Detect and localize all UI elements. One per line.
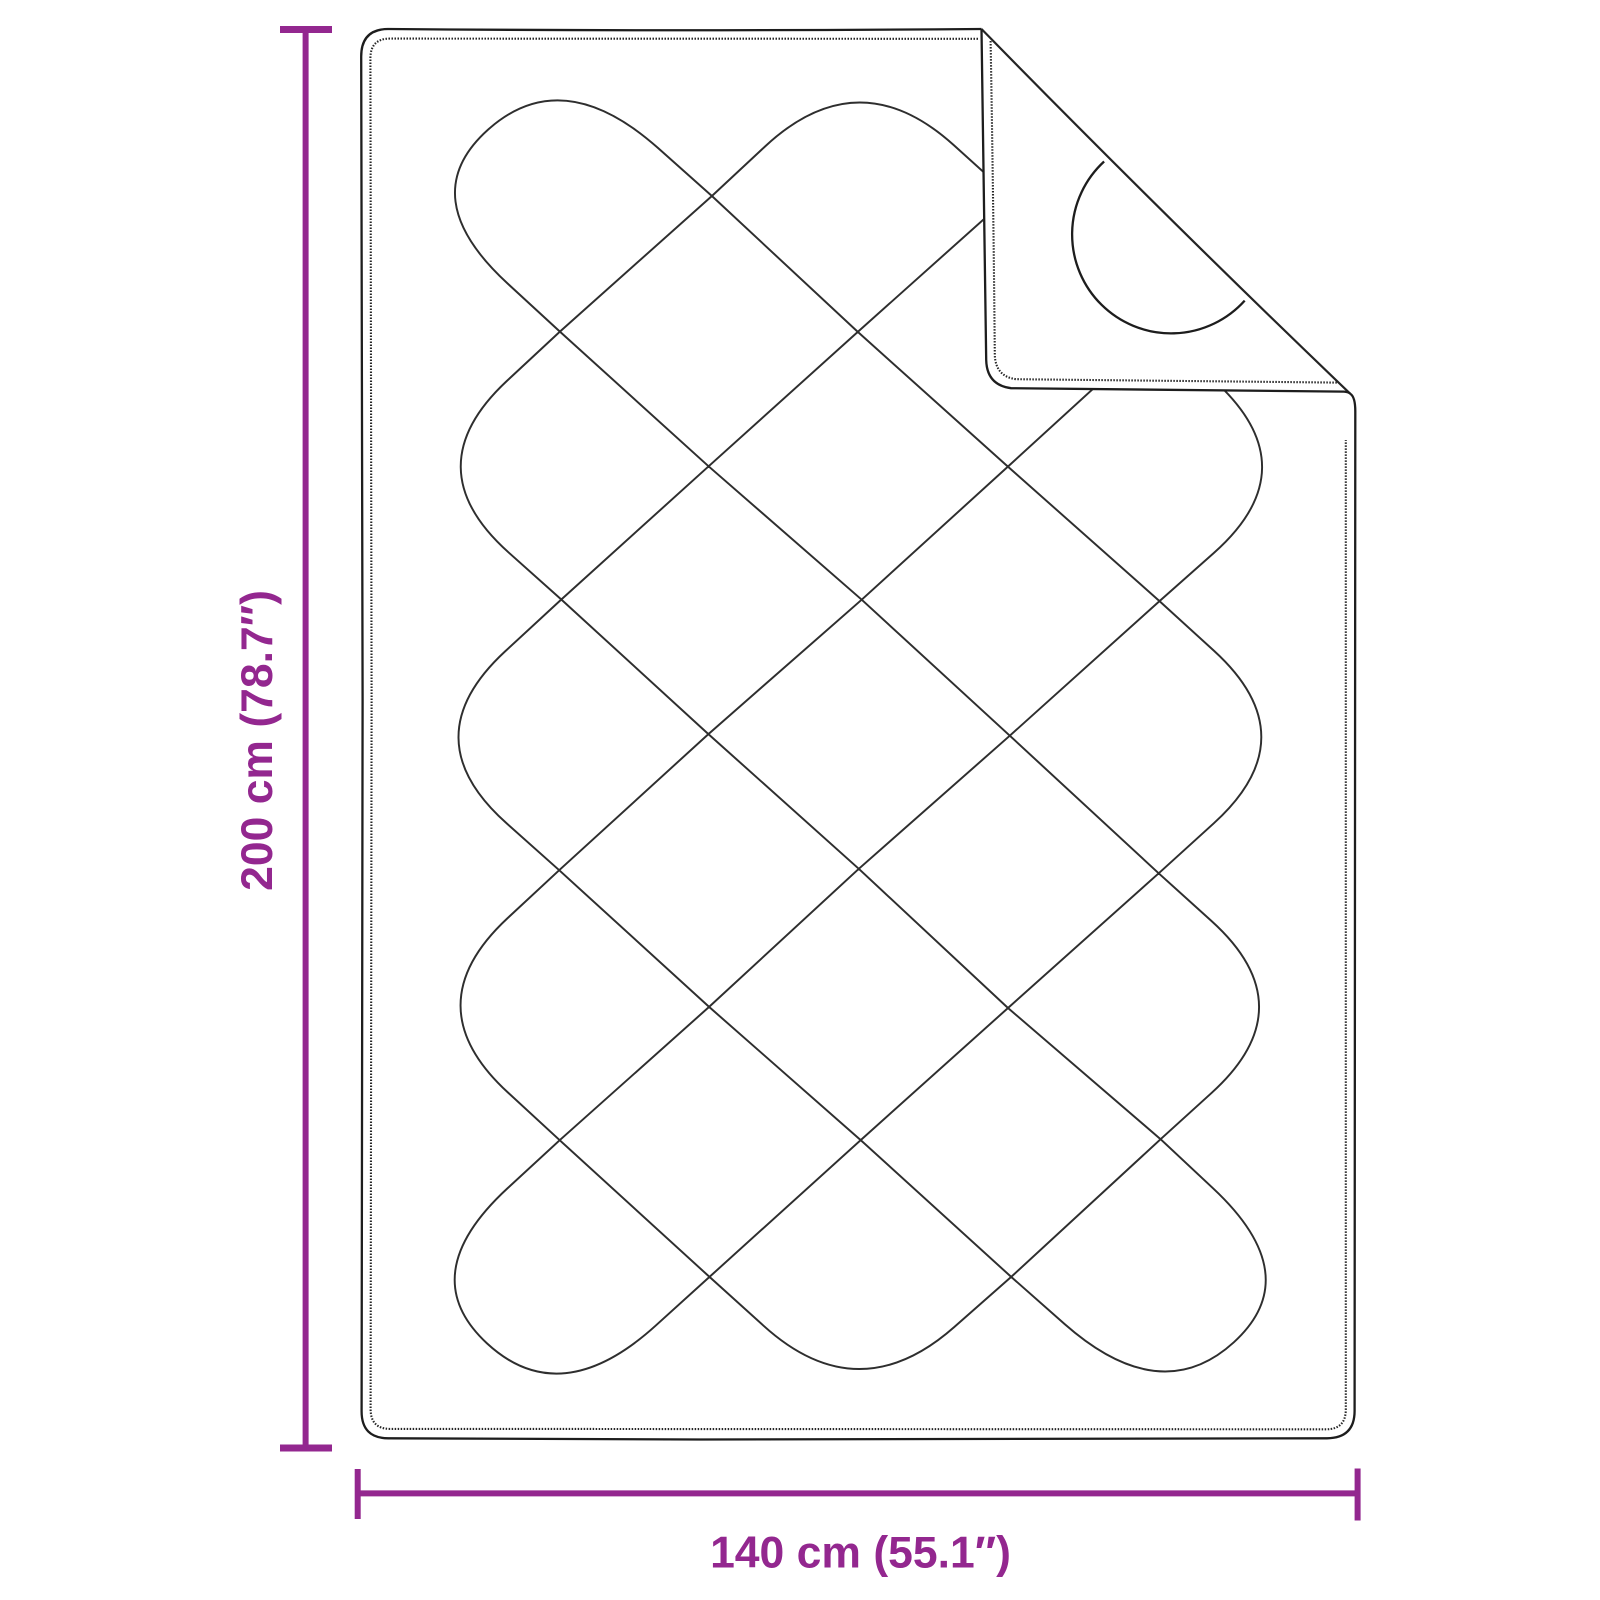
svg-text:140 cm (55.1″): 140 cm (55.1″): [710, 1529, 1011, 1578]
svg-text:200 cm (78.7″): 200 cm (78.7″): [233, 590, 282, 891]
